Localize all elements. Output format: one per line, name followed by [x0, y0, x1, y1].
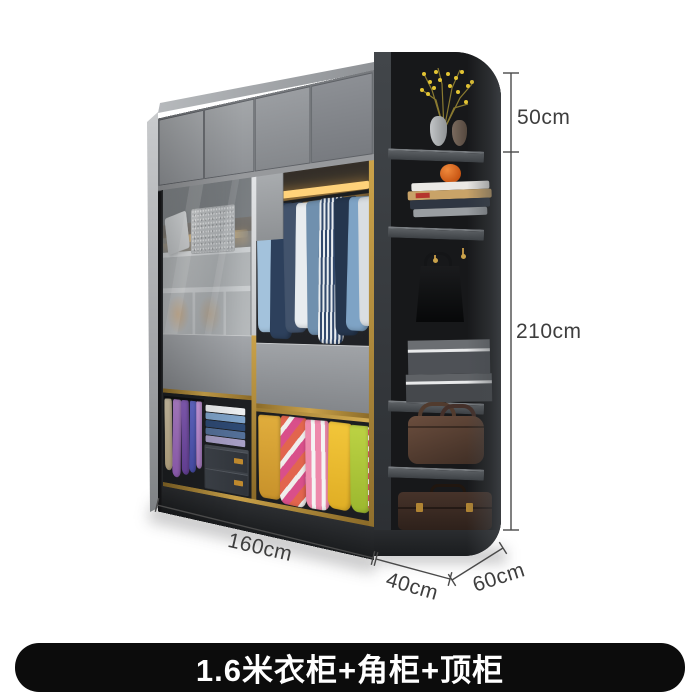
- product-title-text: 1.6米衣柜+角柜+顶柜: [196, 645, 504, 690]
- wardrobe-product-image: 50cm 210cm 160cm 40cm 60cm 1.6米衣柜+角柜+顶柜: [0, 0, 700, 700]
- dimension-lines: [0, 0, 700, 700]
- dimension-label-top-cabinet: 50cm: [517, 106, 570, 130]
- dimension-label-height: 210cm: [516, 320, 582, 344]
- product-title-banner: 1.6米衣柜+角柜+顶柜: [15, 643, 685, 692]
